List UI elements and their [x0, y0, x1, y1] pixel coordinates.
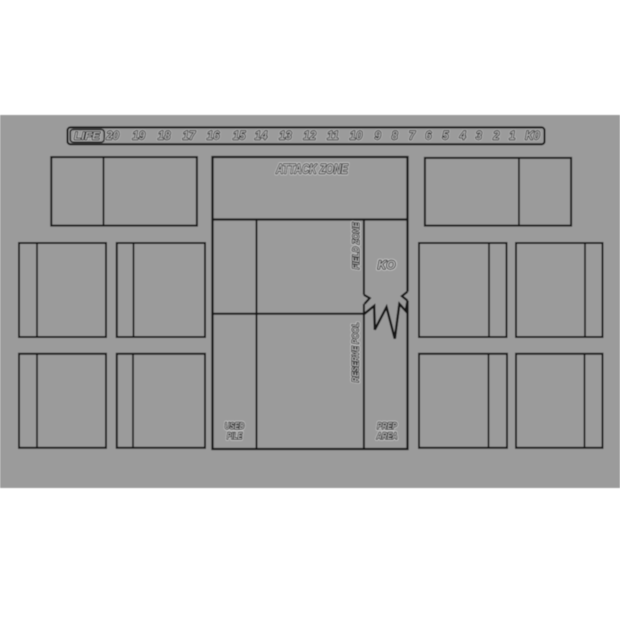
svg-text:PILE: PILE: [227, 431, 243, 442]
svg-text:ATTACK ZONE: ATTACK ZONE: [275, 162, 349, 177]
svg-text:RESERVE POOL: RESERVE POOL: [351, 322, 362, 382]
svg-text:FIELD ZONE: FIELD ZONE: [351, 222, 362, 270]
svg-text:AREA: AREA: [376, 431, 398, 442]
svg-text:KO: KO: [378, 258, 397, 272]
svg-text:LIFE: LIFE: [74, 131, 101, 143]
